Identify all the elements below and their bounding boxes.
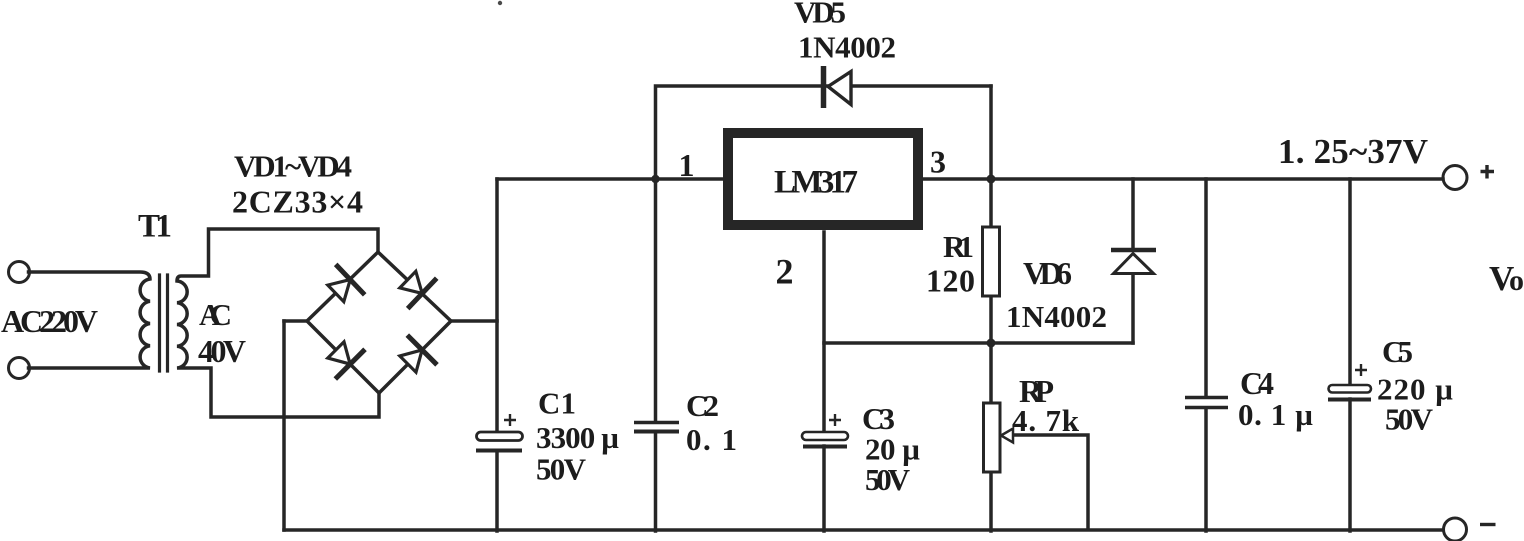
svg-text:50V: 50V xyxy=(865,462,911,497)
svg-text:VD1~VD4: VD1~VD4 xyxy=(234,149,352,184)
svg-text:1: 1 xyxy=(679,147,695,183)
svg-text:T1: T1 xyxy=(138,209,172,245)
svg-text:50V: 50V xyxy=(1385,402,1434,437)
svg-text:3300 µ: 3300 µ xyxy=(536,420,619,455)
svg-text:2: 2 xyxy=(776,252,794,292)
svg-text:VD5: VD5 xyxy=(794,0,846,30)
svg-text:40V: 40V xyxy=(198,333,246,369)
svg-text:C4: C4 xyxy=(1240,365,1274,401)
svg-text:1. 25~37V: 1. 25~37V xyxy=(1278,132,1428,171)
svg-text:4. 7k: 4. 7k xyxy=(1012,403,1080,438)
svg-text:C1: C1 xyxy=(538,386,576,421)
svg-text:2CZ33×4: 2CZ33×4 xyxy=(232,184,363,220)
svg-text:C5: C5 xyxy=(1382,334,1413,369)
svg-text:3: 3 xyxy=(930,144,946,180)
svg-text:R1: R1 xyxy=(943,229,974,264)
svg-text:120: 120 xyxy=(926,263,975,299)
svg-text:VD6: VD6 xyxy=(1023,255,1072,291)
svg-text:C2: C2 xyxy=(686,388,719,423)
svg-text:0. 1 µ: 0. 1 µ xyxy=(1238,397,1313,432)
svg-text:1N4002: 1N4002 xyxy=(798,30,896,65)
svg-text:o: o xyxy=(1509,264,1524,297)
svg-text:0. 1: 0. 1 xyxy=(686,422,737,457)
svg-text:LM317: LM317 xyxy=(774,165,858,201)
svg-text:AC220V: AC220V xyxy=(1,303,98,339)
svg-text:1N4002: 1N4002 xyxy=(1006,299,1107,334)
svg-text:50V: 50V xyxy=(536,452,587,487)
svg-text:AC: AC xyxy=(199,297,232,332)
